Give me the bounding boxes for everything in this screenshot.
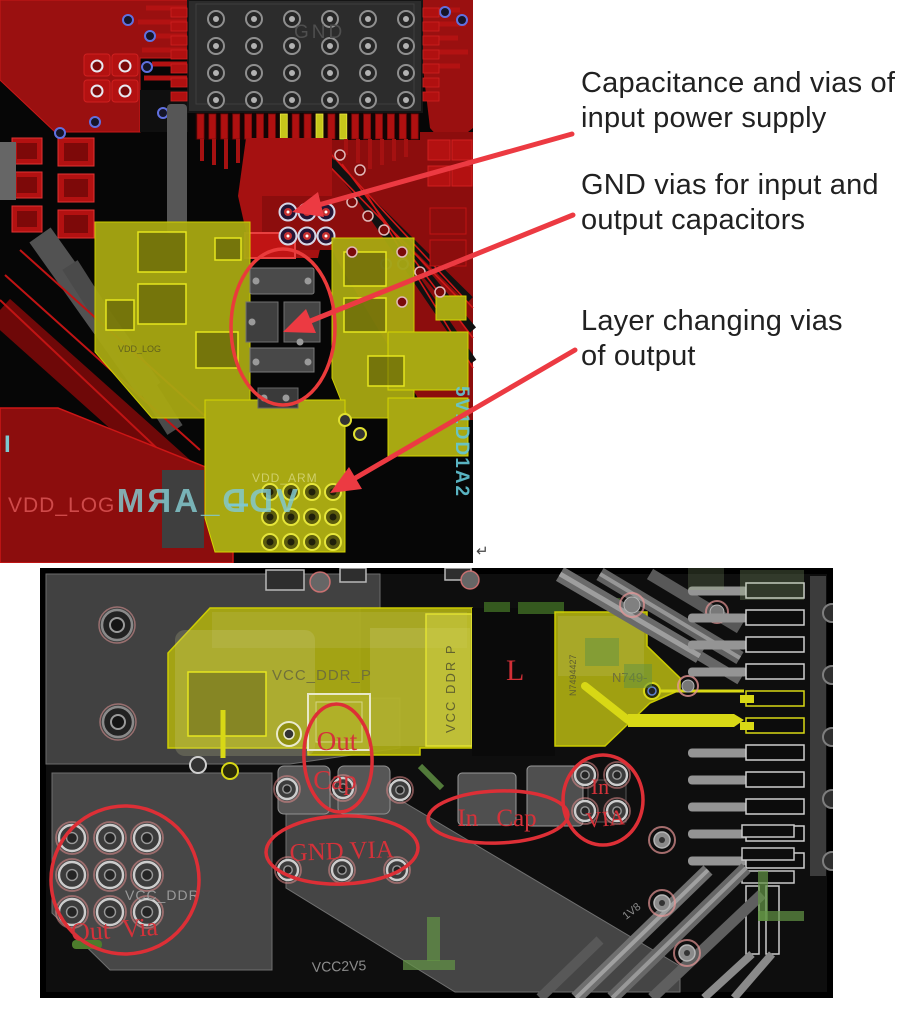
edge-mark: I (4, 431, 11, 458)
chip-pin (292, 114, 299, 139)
chip-pin (257, 114, 264, 139)
mirrored-vdd-arm-label: VDD_ARM (114, 482, 298, 519)
chip-pin (280, 114, 287, 139)
annotation-line: Capacitance and vias of (581, 66, 895, 101)
via (309, 514, 316, 521)
chip-pin (376, 114, 383, 139)
via (306, 235, 309, 238)
chip-pin (399, 114, 406, 139)
via (67, 907, 78, 918)
in-via-label-1: In (591, 774, 609, 799)
chip-pin (197, 114, 204, 139)
chip-pin (316, 114, 323, 139)
chip-pin (171, 92, 187, 101)
chip-pad-center (289, 70, 295, 76)
finger-pad (746, 718, 804, 733)
chip-pad-center (213, 97, 219, 103)
in-cap-label: In Cap (457, 805, 536, 832)
document-page: GND VDD_LOG VDD_A (0, 0, 920, 1010)
part-ref-rotated: N7494427 (568, 654, 578, 696)
finger-trace (740, 722, 754, 730)
annotation-input-supply: Capacitance and vias of input power supp… (581, 66, 895, 136)
finger-trace (688, 668, 748, 677)
finger-trace (688, 776, 748, 785)
edge-pad (823, 790, 833, 808)
chip-pin (423, 50, 439, 59)
via (267, 539, 274, 546)
via (67, 870, 78, 881)
return-mark: ↵ (476, 543, 489, 560)
annotation-line: input power supply (581, 101, 895, 136)
chip-pad-center (403, 97, 409, 103)
chip-pin (423, 36, 439, 45)
chip-pin (411, 114, 418, 139)
chip-pin (423, 8, 439, 17)
chip-pad-center (327, 43, 333, 49)
chip-pin (387, 114, 394, 139)
finger-trace (688, 830, 748, 839)
chip-pad-center (251, 16, 257, 22)
vdd-log-label: VDD_LOG (8, 494, 115, 517)
chip-pad-center (403, 43, 409, 49)
annotation-line: Layer changing vias (581, 304, 843, 339)
chip-pin (423, 78, 439, 87)
finger-trace (688, 641, 748, 650)
via (142, 833, 153, 844)
via (105, 870, 116, 881)
annotation-line: of output (581, 339, 843, 374)
in-via-label-2: VIA (585, 804, 626, 832)
annotation-layer-vias: Layer changing vias of output (581, 304, 843, 374)
finger-pad (746, 637, 804, 652)
via (338, 866, 346, 874)
out-cap-label-1: Out (317, 726, 358, 756)
chip-pin (340, 114, 347, 139)
chip-pad-center (289, 43, 295, 49)
finger-pad (746, 745, 804, 760)
bottom-pcb-figure: VCC_DDR_P VCC DDR P L N7494427 N749- (40, 568, 833, 998)
chip-pad-center (251, 97, 257, 103)
chip-pad-center (251, 70, 257, 76)
edge-pad (823, 728, 833, 746)
chip-pad-center (403, 70, 409, 76)
annotation-line: output capacitors (581, 203, 879, 238)
via (287, 211, 290, 214)
gray-bar (167, 104, 187, 234)
chip-pin (245, 114, 252, 139)
via (325, 211, 328, 214)
finger-trace (688, 803, 748, 812)
finger-trace (740, 695, 754, 703)
chip-pin (221, 114, 228, 139)
chip-pad-center (403, 16, 409, 22)
chip-pin (328, 114, 335, 139)
chip-pad-center (365, 97, 371, 103)
pour-net-label: VDD_LOG (118, 344, 161, 354)
chip-pad-center (365, 16, 371, 22)
chip-pad-center (327, 70, 333, 76)
chip-pad-center (213, 43, 219, 49)
finger-pad (746, 772, 804, 787)
via (105, 833, 116, 844)
chip-pad-center (327, 97, 333, 103)
edge-pad (823, 852, 833, 870)
via (325, 235, 328, 238)
annotation-line: GND vias for input and (581, 168, 879, 203)
via (309, 489, 316, 496)
chip-pin (171, 36, 187, 45)
chip-pad-center (213, 70, 219, 76)
chip-pin (171, 22, 187, 31)
gnd-via-label: GND VIA (289, 836, 394, 867)
edge-bar (810, 576, 826, 876)
chip-pin (423, 64, 439, 73)
gray-blob (0, 142, 16, 200)
chip-pin (423, 22, 439, 31)
out-cap-label-2: Cap (313, 765, 357, 795)
annotation-gnd-vias: GND vias for input and output capacitors (581, 168, 879, 238)
finger-trace (688, 857, 748, 866)
chip-pad-center (289, 97, 295, 103)
finger-trace (688, 614, 748, 623)
chip-pin (352, 114, 359, 139)
chip-gnd-label: GND (294, 22, 345, 43)
via (288, 539, 295, 546)
chip-pin (209, 114, 216, 139)
finger-pad (746, 610, 804, 625)
finger-pad (746, 691, 804, 706)
via (396, 786, 404, 794)
vcc2v5-label: VCC2V5 (312, 957, 367, 975)
inductor-label: L (506, 654, 524, 687)
vcc-ddr-p-label: VCC_DDR_P (272, 667, 372, 684)
chip-pin (423, 92, 439, 101)
finger-pad (746, 799, 804, 814)
via (330, 514, 337, 521)
via (613, 771, 621, 779)
chip-pin (233, 114, 240, 139)
chip-pin (171, 8, 187, 17)
out-via-label: Out Via (70, 912, 159, 947)
side-net-label: 5V1DD1A2 (451, 386, 472, 498)
chip-pin (364, 114, 371, 139)
chip-pad-center (251, 43, 257, 49)
chip-pad-center (365, 43, 371, 49)
via (287, 235, 290, 238)
chip-pin (171, 50, 187, 59)
chip-pin (171, 64, 187, 73)
via (283, 785, 291, 793)
chip-pad-center (213, 16, 219, 22)
via (142, 870, 153, 881)
chip-pin (171, 78, 187, 87)
via (330, 539, 337, 546)
chip-pin (268, 114, 275, 139)
edge-pad (823, 604, 833, 622)
via (581, 771, 589, 779)
vcc-ddr-p-vertical-label: VCC DDR P (443, 643, 458, 733)
chip-pad-center (365, 70, 371, 76)
finger-pad (746, 664, 804, 679)
edge-pad (823, 666, 833, 684)
vcc-ddr-label: VCC_DDR (125, 887, 200, 903)
via (309, 539, 316, 546)
finger-trace (688, 749, 748, 758)
chip-pin (304, 114, 311, 139)
